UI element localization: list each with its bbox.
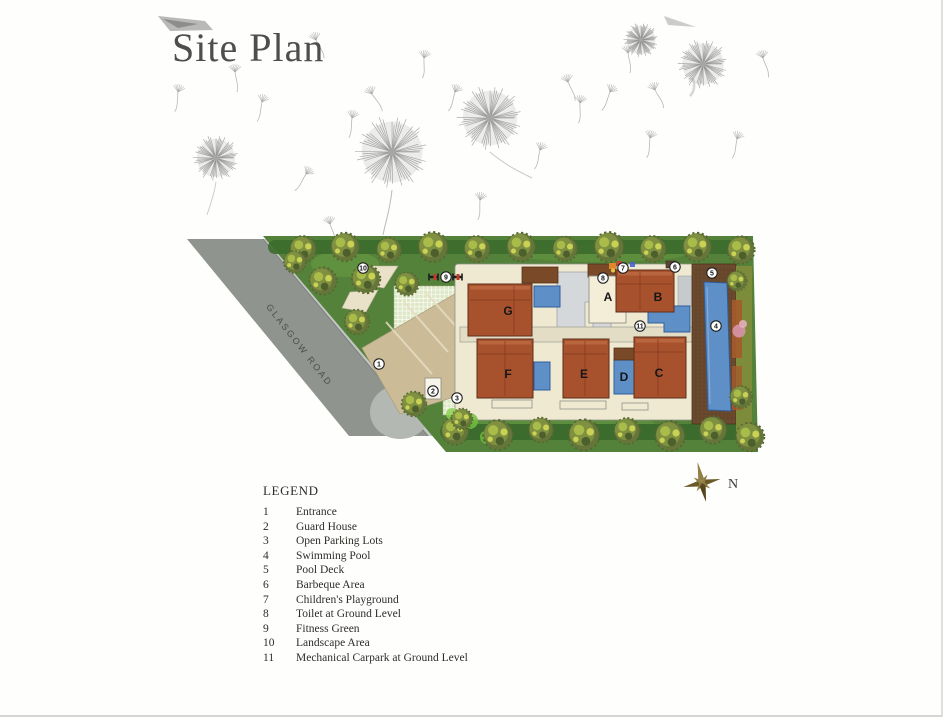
building-label: B [654, 290, 663, 304]
legend-row: 1Entrance [263, 505, 468, 520]
walk-pad [622, 403, 648, 410]
dandelion-seed-icon [595, 82, 619, 112]
marker-8-toilet: 8 [598, 273, 608, 283]
svg-text:11: 11 [636, 324, 644, 331]
walk-pad [560, 401, 606, 409]
dandelion-seed-icon [470, 191, 487, 221]
legend-row: 11Mechanical Carpark at Ground Level [263, 651, 468, 666]
roof-annex [614, 348, 634, 360]
dandelion-seed-icon [441, 82, 464, 112]
dandelion-seed-icon [527, 140, 549, 170]
brochure-page: Site Plan [0, 0, 943, 717]
ink-smudge [664, 16, 696, 27]
dandelion-stem [383, 190, 392, 235]
building-e: E [563, 339, 609, 398]
marker-6-barbeque: 6 [670, 262, 680, 272]
building-label: E [580, 367, 588, 381]
marker-4-swimming-pool: 4 [711, 321, 721, 331]
legend-row: 5Pool Deck [263, 563, 468, 578]
dandelion-seed-icon [622, 45, 634, 73]
legend-item-label: Entrance [296, 505, 337, 520]
dandelion-seed-icon [571, 94, 588, 124]
compass-rose-icon [679, 459, 724, 506]
legend-item-label: Swimming Pool [296, 549, 370, 564]
legend-row: 6Barbeque Area [263, 578, 468, 593]
svg-text:5: 5 [710, 271, 714, 278]
building-label: F [504, 367, 511, 381]
dandelion-seed-icon [363, 84, 386, 114]
dandelion-stem [490, 152, 532, 178]
building-label: D [620, 370, 629, 384]
dandelion-seed-icon [250, 92, 271, 122]
legend-item-number: 1 [263, 505, 296, 520]
legend: LEGEND 1Entrance 2Guard House 3Open Park… [263, 483, 468, 666]
dandelion-seed-icon [756, 49, 773, 79]
building-f: F [477, 339, 533, 398]
legend-item-number: 6 [263, 578, 296, 593]
legend-item-label: Barbeque Area [296, 578, 365, 593]
legend-item-number: 9 [263, 622, 296, 637]
dandelion-seed-icon [341, 109, 360, 139]
svg-text:10: 10 [359, 266, 367, 273]
marker-3-open-parking: 3 [452, 393, 462, 403]
compass: N [679, 459, 738, 506]
marker-9-fitness-green: 9 [441, 272, 451, 282]
marker-5-pool-deck: 5 [707, 268, 717, 278]
marker-7-playground: 7 [618, 263, 628, 273]
page-title: Site Plan [172, 24, 324, 71]
dandelion-seed-icon [167, 83, 186, 113]
legend-row: 3Open Parking Lots [263, 534, 468, 549]
legend-item-label: Open Parking Lots [296, 534, 383, 549]
dandelion-head-icon [678, 40, 727, 88]
svg-text:3: 3 [455, 396, 459, 403]
svg-text:4: 4 [714, 324, 718, 331]
roof-annex [522, 267, 558, 283]
legend-item-number: 7 [263, 593, 296, 608]
legend-item-label: Pool Deck [296, 563, 344, 578]
legend-item-number: 2 [263, 520, 296, 535]
svg-text:9: 9 [444, 275, 448, 282]
legend-row: 10Landscape Area [263, 636, 468, 651]
legend-item-label: Children's Playground [296, 593, 399, 608]
building-label: A [604, 290, 613, 304]
dandelion-seed-icon [647, 80, 668, 110]
utility-pad [678, 276, 692, 306]
dandelion-head-icon [457, 87, 521, 150]
legend-item-number: 5 [263, 563, 296, 578]
site-plan: G A B F E [187, 232, 764, 452]
building-label: C [655, 366, 664, 380]
legend-item-label: Toilet at Ground Level [296, 607, 401, 622]
legend-row: 4Swimming Pool [263, 549, 468, 564]
legend-row: 7Children's Playground [263, 593, 468, 608]
svg-text:6: 6 [673, 265, 677, 272]
legend-item-number: 8 [263, 607, 296, 622]
building-c: C [634, 337, 686, 398]
marker-1-entrance: 1 [374, 359, 384, 369]
dandelion-head-icon [355, 117, 426, 187]
dandelion-seed-icon [725, 129, 746, 159]
legend-item-number: 3 [263, 534, 296, 549]
legend-item-label: Fitness Green [296, 622, 360, 637]
dandelion-seed-icon [289, 164, 316, 193]
legend-row: 9Fitness Green [263, 622, 468, 637]
building-label: G [503, 304, 512, 318]
legend-item-number: 11 [263, 651, 296, 666]
flower-cluster [739, 320, 747, 328]
legend-item-label: Guard House [296, 520, 357, 535]
marker-10-landscape: 10 [358, 263, 368, 273]
walk-pad [492, 400, 532, 408]
legend-title: LEGEND [263, 483, 468, 499]
water-feature [534, 286, 560, 307]
svg-text:8: 8 [601, 276, 605, 283]
legend-item-number: 4 [263, 549, 296, 564]
site-plan-figure: G A B F E [0, 0, 943, 717]
svg-text:2: 2 [431, 389, 435, 396]
marker-11-mech-carpark: 11 [635, 321, 645, 331]
building-d: D [620, 370, 629, 384]
water-feature [534, 362, 550, 390]
dandelion-seed-icon [639, 129, 658, 159]
dandelion-head-icon [193, 136, 238, 180]
legend-item-label: Mechanical Carpark at Ground Level [296, 651, 468, 666]
legend-item-number: 10 [263, 636, 296, 651]
svg-text:1: 1 [377, 362, 381, 369]
svg-text:7: 7 [621, 266, 625, 273]
dandelion-seed-icon [415, 49, 432, 79]
compass-label: N [728, 477, 738, 492]
dandelion-stem [207, 182, 216, 215]
legend-row: 2Guard House [263, 520, 468, 535]
marker-2-guard-house: 2 [428, 386, 438, 396]
building-b: B [616, 270, 674, 312]
building-g: G [468, 284, 532, 336]
legend-row: 8Toilet at Ground Level [263, 607, 468, 622]
legend-item-label: Landscape Area [296, 636, 370, 651]
